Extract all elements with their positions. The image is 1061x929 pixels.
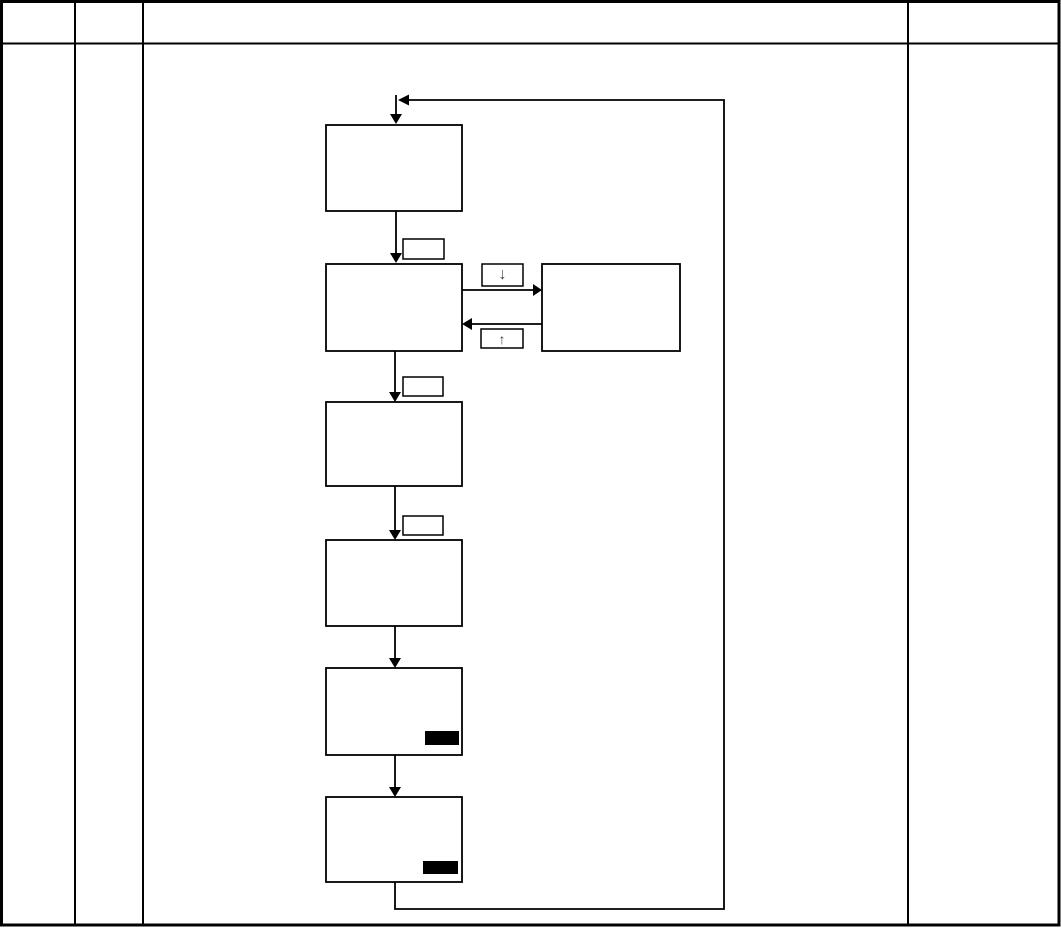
document-page: ↓ ↑ [0,0,1061,929]
flow-box-4 [326,540,462,626]
feedback-loop-connector [395,100,724,909]
table-and-flowchart-canvas [0,0,1061,929]
step-label-box-1 [403,239,444,259]
filled-bar-box6 [423,861,458,874]
down-arrowhead-icon-4 [389,658,401,668]
up-arrow-label-box [481,329,523,348]
flow-box-side [542,264,680,351]
filled-bar-box5 [425,731,459,745]
down-arrowhead-icon-1 [390,253,402,263]
right-arrowhead-icon [533,284,542,296]
table-outer-border [2,2,1060,926]
entry-down-arrowhead-icon [390,114,402,124]
flow-box-2 [326,264,462,351]
down-arrowhead-icon-3 [389,530,401,540]
flow-box-3 [326,402,462,486]
flow-box-1 [326,125,462,211]
left-arrowhead-icon [462,318,472,330]
down-arrowhead-icon-2 [389,392,401,402]
down-arrow-label-box [482,264,523,286]
step-label-box-3 [403,516,443,535]
down-arrowhead-icon-5 [389,787,401,797]
feedback-left-arrowhead-icon [398,95,409,106]
step-label-box-2 [403,377,443,396]
